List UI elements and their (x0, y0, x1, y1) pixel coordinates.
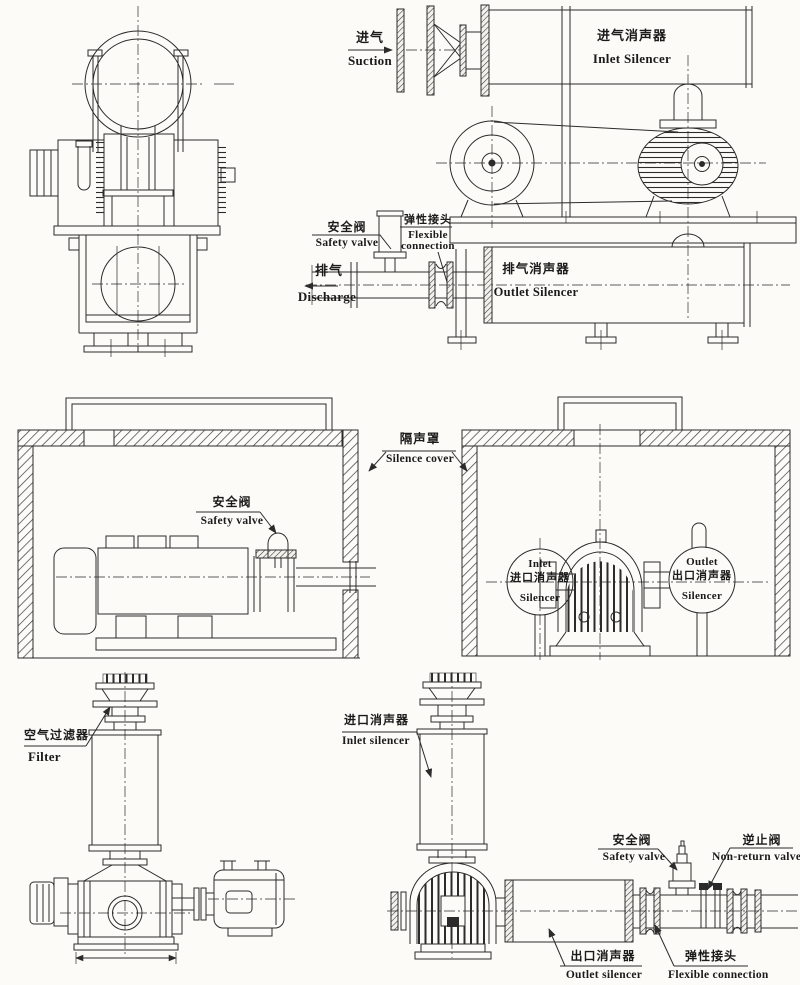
panel-enclosure-side-view (18, 398, 376, 658)
non-return-valve (699, 883, 708, 890)
label-flexible-connection-tr-zh: 弹性接头 (401, 214, 455, 226)
label-outlet-silencer-tr-en: Outlet Silencer (486, 286, 586, 300)
label-silence-cover-en: Silence cover (382, 453, 458, 466)
panel-vertical-filter-unit (30, 672, 296, 964)
enclosure-right-wall (343, 430, 358, 562)
panel-front-view-blower (30, 6, 235, 357)
safety-valve-body (673, 863, 691, 881)
label-outlet-silencer-br-zh: 出口消声器 (568, 950, 638, 963)
panel-vertical-silencer-unit (387, 672, 798, 959)
label-outlet-circle-zh: 出口消声器 (668, 570, 736, 582)
label-inlet-silencer-br-zh: 进口消声器 (344, 714, 418, 727)
label-safety-valve-br-zh: 安全阀 (604, 834, 660, 847)
label-outlet-circle-en1: Outlet (676, 556, 728, 568)
label-suction-en: Suction (336, 54, 404, 68)
label-inlet-circle-en1: Inlet (516, 558, 564, 570)
label-inlet-silencer-tr-zh: 进气消声器 (584, 29, 680, 43)
enclosure-left-wall (462, 446, 477, 656)
label-silence-cover-zh: 隔声罩 (386, 433, 454, 447)
label-outlet-silencer-br-en: Outlet silencer (562, 969, 646, 982)
motor (54, 548, 96, 634)
label-safety-valve-tr-en: Safety valve (308, 237, 386, 250)
label-filter-en: Filter (28, 750, 72, 764)
label-outlet-silencer-tr-zh: 排气消声器 (490, 263, 582, 277)
label-safety-valve-ml-en: Safety valve (194, 515, 270, 528)
label-safety-valve-tr-zh: 安全阀 (316, 221, 378, 234)
label-inlet-silencer-br-en: Inlet silencer (342, 735, 422, 748)
label-discharge-zh: 排气 (308, 264, 350, 278)
label-non-return-valve-en: Non-return valve (712, 851, 800, 864)
blower-package-body (98, 548, 248, 614)
label-inlet-silencer-tr-en: Inlet Silencer (578, 52, 686, 66)
label-safety-valve-br-en: Safety valve (596, 851, 672, 864)
diagram-canvas (0, 0, 800, 985)
label-flexible-connection-br-en: Flexible connection (668, 969, 764, 982)
base-frame (450, 217, 796, 243)
label-inlet-circle-en2: Silencer (512, 592, 568, 604)
label-outlet-circle-en2: Silencer (674, 590, 730, 602)
label-inlet-circle-zh: 进口消声器 (506, 572, 574, 584)
label-non-return-valve-zh: 逆止阀 (736, 834, 788, 847)
label-safety-valve-ml-zh: 安全阀 (202, 496, 262, 509)
enclosure-top-wall (18, 430, 342, 446)
enclosure-right-wall (775, 446, 790, 656)
label-filter-zh: 空气过滤器 (24, 729, 90, 742)
label-flexible-connection-br-zh: 弹性接头 (680, 950, 742, 963)
label-suction-zh: 进气 (340, 31, 400, 45)
label-discharge-en: Discharge (294, 290, 360, 304)
enclosure-left-wall (18, 446, 33, 658)
diagram-page: 进气 Suction 进气消声器 Inlet Silencer 安全阀 Safe… (0, 0, 800, 985)
label-flexible-connection-tr-en2: connection (400, 240, 456, 252)
panel-enclosure-end-view (462, 397, 790, 660)
